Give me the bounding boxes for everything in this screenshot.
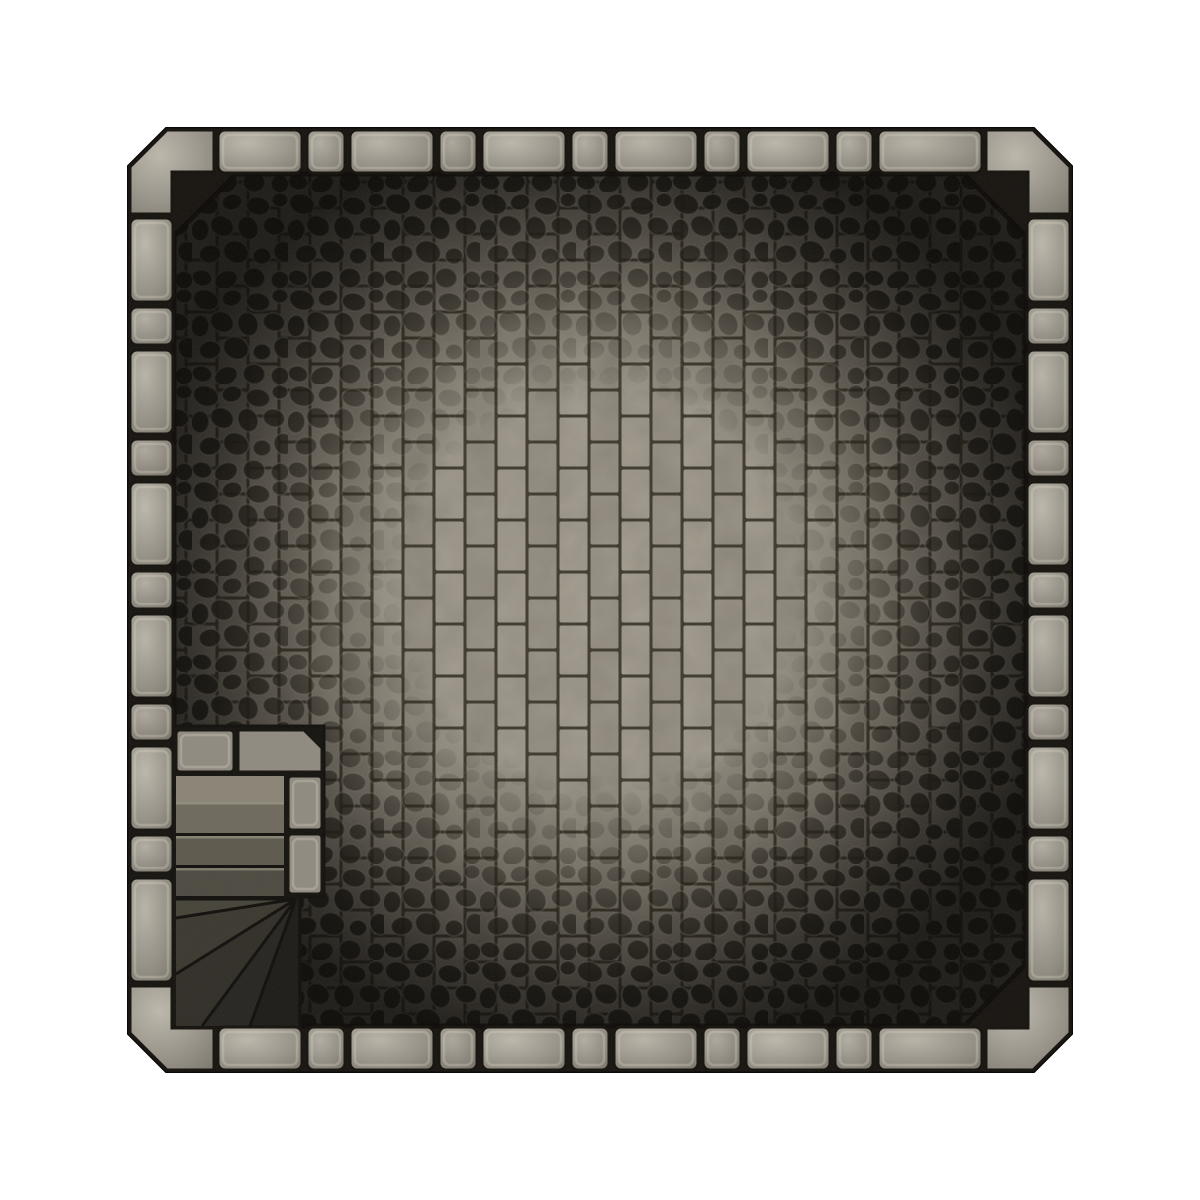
- dungeon-map-svg: [0, 0, 1200, 1200]
- grain-texture: [120, 120, 1080, 1080]
- dungeon-room-map: [0, 0, 1200, 1200]
- page: { "page": { "background": "#ffffff" }, "…: [0, 0, 1200, 1200]
